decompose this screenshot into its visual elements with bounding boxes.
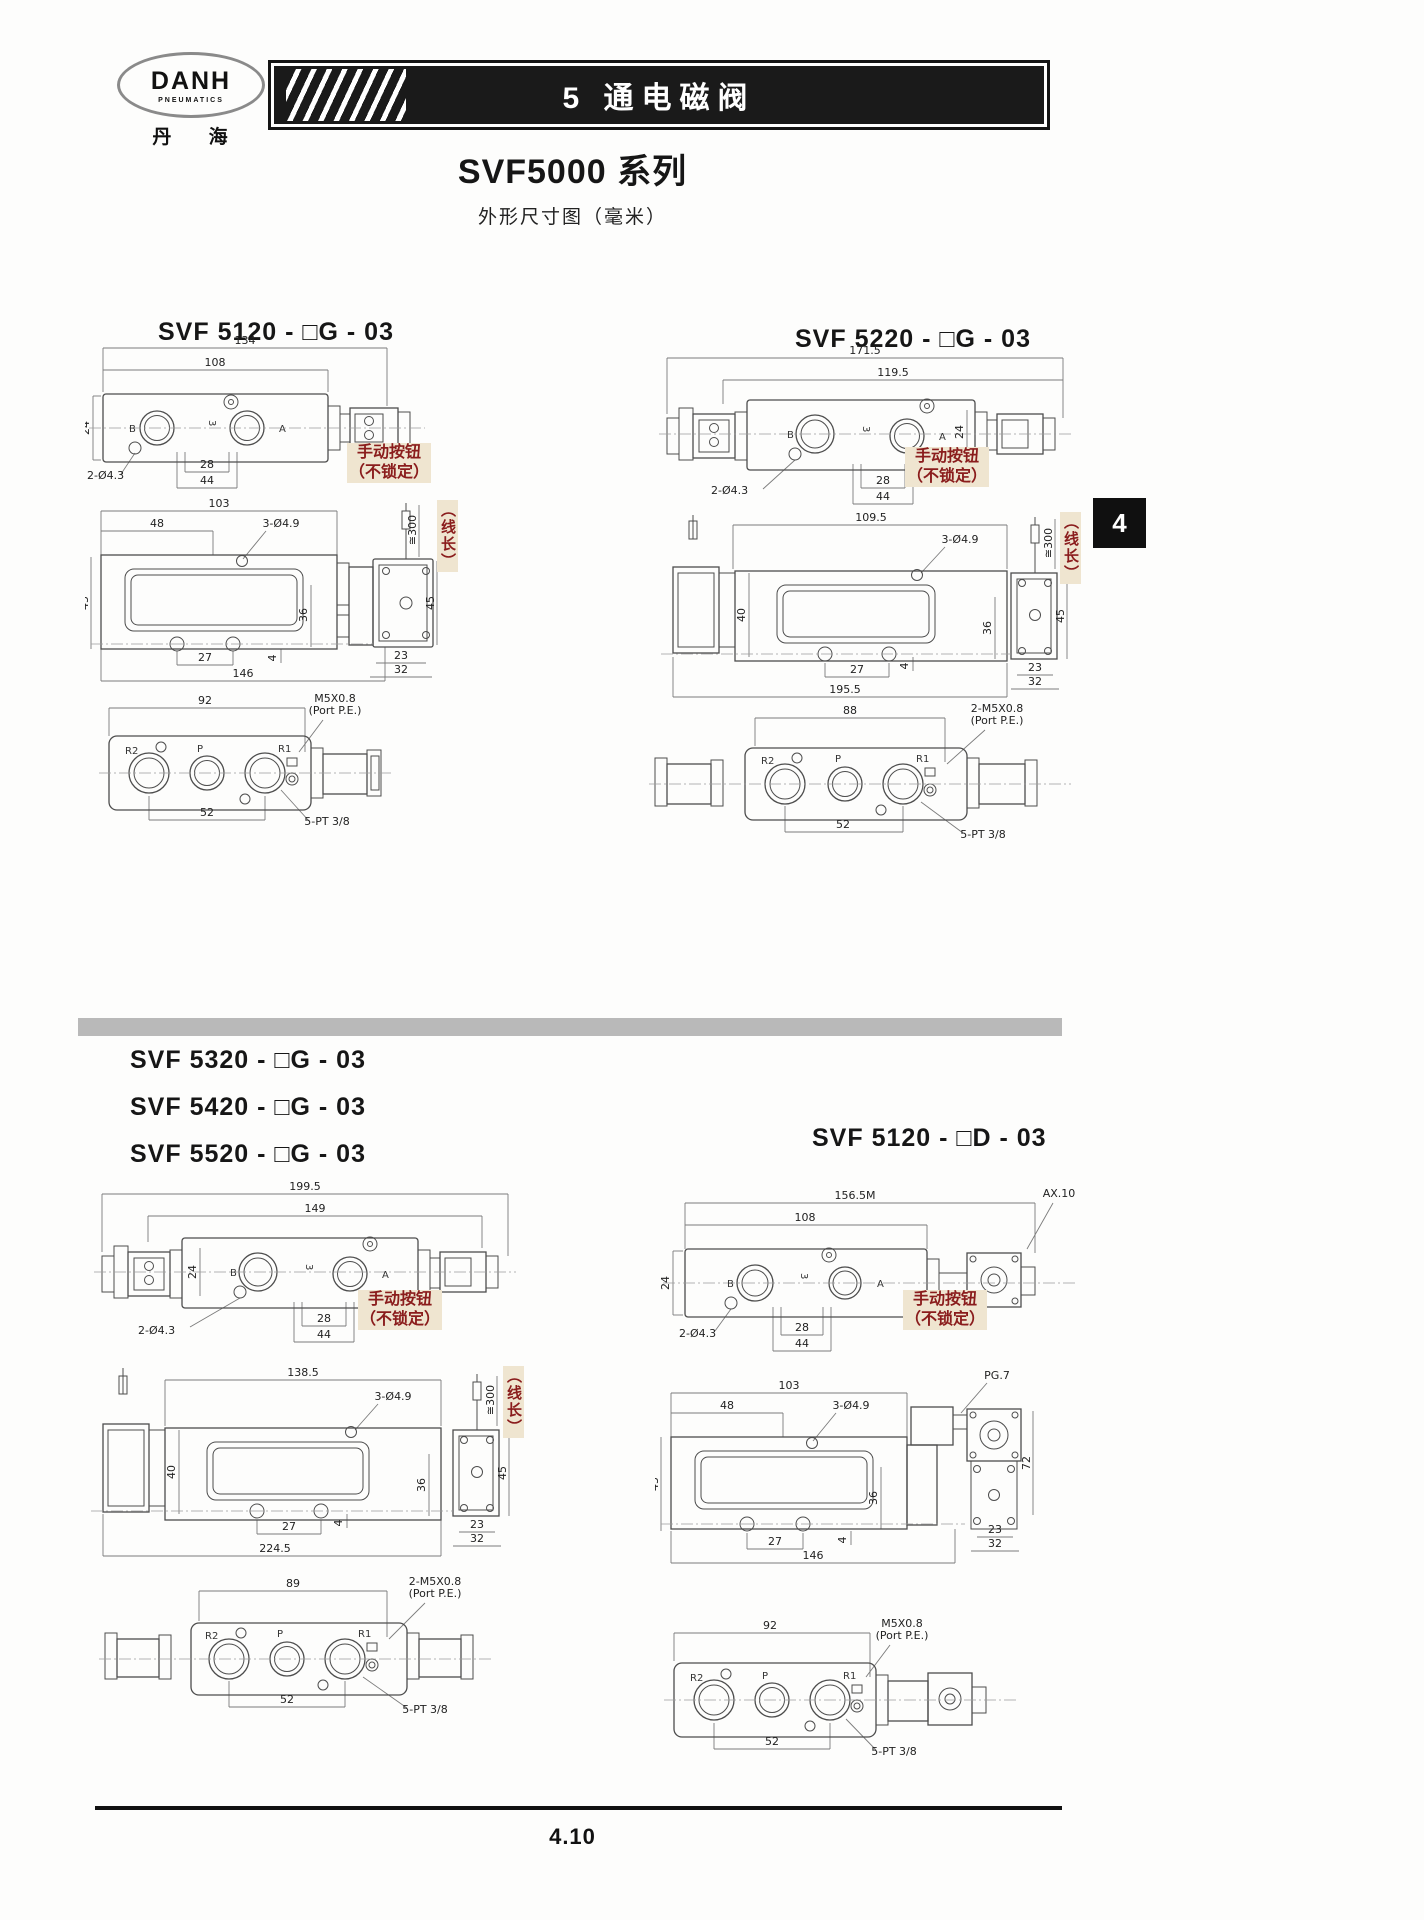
page-number: 4.10 xyxy=(80,1824,1065,1850)
dim-label: 45 xyxy=(85,596,91,610)
section-banner: 5 通电磁阀 xyxy=(268,60,1050,130)
port-label: R1 xyxy=(916,754,929,765)
dim-label: 36 xyxy=(415,1478,428,1492)
port-label: R2 xyxy=(761,756,774,767)
svf5120d-top-view-drawing: 156.5M AX.10 108 24 28 44 2-Ø4.3 B A 3 xyxy=(655,1185,1080,1357)
thread-callout: (Port P.E.) xyxy=(409,1587,462,1600)
valve-outline xyxy=(103,1368,499,1520)
dim-label: 134 xyxy=(235,334,256,347)
dim-label: 138.5 xyxy=(287,1366,319,1379)
port-label: B xyxy=(727,1279,734,1290)
port-label: 3 xyxy=(303,1264,314,1270)
dim-label: 45 xyxy=(1054,609,1067,623)
wire-length-dim: ≅300 xyxy=(1042,528,1055,558)
port-label: P xyxy=(197,744,203,755)
dimension-lines xyxy=(91,505,437,681)
thread-callout: (Port P.E.) xyxy=(876,1629,929,1642)
dim-label: 44 xyxy=(876,490,890,503)
dim-label: 32 xyxy=(988,1537,1002,1550)
callout-label: PG.7 xyxy=(984,1369,1010,1382)
figure-title-svf5420g: SVF 5420 - □G - 03 xyxy=(130,1093,366,1122)
manual-button-note: 手动按钮 （不锁定） xyxy=(903,1290,987,1330)
svf5120g-bottom-view-drawing: 92 M5X0.8 (Port P.E.) R2 P R1 52 5-PT 3/… xyxy=(95,692,395,830)
port-label: R1 xyxy=(358,1629,371,1640)
port-label: P xyxy=(835,754,841,765)
dim-label: 195.5 xyxy=(829,683,861,696)
dim-label: 32 xyxy=(394,663,408,676)
dim-label: 72 xyxy=(1020,1456,1033,1470)
svf5120g-front-view-drawing: 103 48 3-Ø4.9 45 36 4 27 146 23 32 45 ≅3… xyxy=(85,497,445,687)
dim-label: 52 xyxy=(836,818,850,831)
dim-label: 4 xyxy=(332,1520,345,1527)
port-label: R2 xyxy=(125,746,138,757)
svf5220g-top-view-drawing: 171.5 119.5 24 28 44 2-Ø4.3 B A 3 xyxy=(655,342,1075,508)
manual-button-note-line2: （不锁定） xyxy=(907,467,987,487)
brand-logo: DANH PNEUMATICS 丹 海 xyxy=(115,52,267,149)
port-label: P xyxy=(277,1629,283,1640)
thread-callout: 5-PT 3/8 xyxy=(960,828,1006,841)
dim-label: 36 xyxy=(297,608,310,622)
port-label: A xyxy=(382,1270,389,1281)
dimension-lines xyxy=(199,1591,425,1708)
dimension-lines xyxy=(673,519,1067,697)
logo-subtitle: PNEUMATICS xyxy=(158,97,224,104)
dim-label: 44 xyxy=(795,1337,809,1350)
banner-stripes-decoration xyxy=(286,69,406,121)
manual-button-note: 手动按钮 （不锁定） xyxy=(905,447,989,487)
hole-callout: 3-Ø4.9 xyxy=(262,517,299,530)
port-label: A xyxy=(877,1279,884,1290)
dim-label: 27 xyxy=(768,1535,782,1548)
dim-label: 4 xyxy=(836,1537,849,1544)
manual-button-note-line1: 手动按钮 xyxy=(360,1290,440,1310)
page-subtitle: 外形尺寸图（毫米） xyxy=(80,202,1065,229)
svf5320g-front-view-drawing: 138.5 3-Ø4.9 40 36 4 27 224.5 23 32 45 ≅… xyxy=(85,1360,517,1564)
hole-callout: 2-Ø4.3 xyxy=(679,1327,716,1340)
dimension-lines xyxy=(103,1376,509,1556)
dim-label: 23 xyxy=(988,1523,1002,1536)
port-label: B xyxy=(129,424,136,435)
dim-label: 27 xyxy=(198,651,212,664)
manual-button-note-line2: （不锁定） xyxy=(905,1310,985,1330)
dim-label: 119.5 xyxy=(877,366,909,379)
manual-button-note: 手动按钮 （不锁定） xyxy=(358,1290,442,1330)
hole-callout: 2-Ø4.3 xyxy=(711,484,748,497)
valve-outline xyxy=(667,399,1055,470)
dim-label: 45 xyxy=(424,596,437,610)
dim-label: 92 xyxy=(198,694,212,707)
port-label: R2 xyxy=(205,1631,218,1642)
wire-length-dim: ≅300 xyxy=(484,1385,497,1415)
dim-label: 52 xyxy=(765,1735,779,1748)
dim-label: 92 xyxy=(763,1619,777,1632)
wire-length-note: （线长） xyxy=(437,500,458,572)
catalog-page: DANH PNEUMATICS 丹 海 5 通电磁阀 SVF5000 系列 外形… xyxy=(0,0,1424,1920)
dim-label: 28 xyxy=(795,1321,809,1334)
chapter-tab: 4 xyxy=(1093,498,1146,548)
dim-label: 24 xyxy=(85,421,92,435)
dim-label: 108 xyxy=(795,1211,816,1224)
dim-label: 146 xyxy=(803,1549,824,1562)
dim-label: 48 xyxy=(720,1399,734,1412)
thread-callout: (Port P.E.) xyxy=(309,704,362,717)
port-label: 3 xyxy=(206,420,217,426)
callout-label: AX.10 xyxy=(1043,1187,1076,1200)
dim-label: 149 xyxy=(305,1202,326,1215)
dim-label: 32 xyxy=(470,1532,484,1545)
manual-button-note-line1: 手动按钮 xyxy=(349,443,429,463)
port-label: A xyxy=(939,432,946,443)
dim-label: 4 xyxy=(898,663,911,670)
dim-label: 4 xyxy=(266,655,279,662)
dimension-lines xyxy=(673,1203,1053,1351)
dim-label: 40 xyxy=(165,1465,178,1479)
port-label: 3 xyxy=(860,426,871,432)
manual-button-note-line1: 手动按钮 xyxy=(907,447,987,467)
svf5320g-bottom-view-drawing: 89 2-M5X0.8 (Port P.E.) R2 P R1 52 5-PT … xyxy=(95,1575,495,1717)
dim-label: 52 xyxy=(200,806,214,819)
wire-length-dim: ≅300 xyxy=(406,515,419,545)
dim-label: 199.5 xyxy=(289,1180,321,1193)
wire-length-note: （线长） xyxy=(1060,512,1081,584)
svf5220g-front-view-drawing: 109.5 3-Ø4.9 40 36 4 27 195.5 23 32 45 ≅… xyxy=(655,507,1085,703)
dim-label: 171.5 xyxy=(849,344,881,357)
figure-title-svf5320g: SVF 5320 - □G - 03 xyxy=(130,1046,366,1075)
dim-label: 44 xyxy=(317,1328,331,1341)
dim-label: 24 xyxy=(186,1265,199,1279)
dim-label: 156.5M xyxy=(835,1189,876,1202)
dim-label: 36 xyxy=(867,1491,880,1505)
port-label: 3 xyxy=(798,1273,809,1279)
port-label: A xyxy=(279,424,286,435)
figure-title-svf5520g: SVF 5520 - □G - 03 xyxy=(130,1140,366,1169)
dim-label: 40 xyxy=(735,608,748,622)
manual-button-note: 手动按钮 （不锁定） xyxy=(347,443,431,483)
svf5320g-top-view-drawing: 199.5 149 24 28 44 2-Ø4.3 B A 3 xyxy=(90,1178,520,1348)
logo-name: DANH xyxy=(151,67,231,96)
section-divider xyxy=(78,1018,1062,1036)
footer-rule xyxy=(95,1806,1062,1810)
thread-callout: 5-PT 3/8 xyxy=(304,815,350,828)
thread-callout: 5-PT 3/8 xyxy=(402,1703,448,1716)
dim-label: 32 xyxy=(1028,675,1042,688)
dim-label: 27 xyxy=(282,1520,296,1533)
dim-label: 89 xyxy=(286,1577,300,1590)
thread-callout: 5-PT 3/8 xyxy=(871,1745,917,1758)
dim-label: 45 xyxy=(496,1466,509,1480)
svf5120d-bottom-view-drawing: 92 M5X0.8 (Port P.E.) R2 P R1 52 5-PT 3/… xyxy=(660,1615,1020,1761)
port-label: R1 xyxy=(278,744,291,755)
dim-label: 28 xyxy=(317,1312,331,1325)
dim-label: 103 xyxy=(209,497,230,510)
hole-callout: 3-Ø4.9 xyxy=(832,1399,869,1412)
hole-callout: 2-Ø4.3 xyxy=(138,1324,175,1337)
dim-label: 48 xyxy=(150,517,164,530)
dimension-lines xyxy=(674,1633,890,1750)
hole-callout: 3-Ø4.9 xyxy=(941,533,978,546)
dim-label: 109.5 xyxy=(855,511,887,524)
dim-label: 45 xyxy=(655,1477,661,1491)
dim-label: 88 xyxy=(843,704,857,717)
port-label: B xyxy=(230,1268,237,1279)
dim-label: 23 xyxy=(1028,661,1042,674)
page-title: SVF5000 系列 xyxy=(80,144,1065,193)
banner-title: 5 通电磁阀 xyxy=(562,73,755,117)
figure-title-svf5120d: SVF 5120 - □D - 03 xyxy=(812,1124,1047,1153)
dim-label: 52 xyxy=(280,1693,294,1706)
hole-callout: 3-Ø4.9 xyxy=(374,1390,411,1403)
logo-ellipse: DANH PNEUMATICS xyxy=(117,52,265,118)
port-label: R1 xyxy=(843,1671,856,1682)
dim-label: 23 xyxy=(470,1518,484,1531)
valve-outline xyxy=(671,1407,1021,1531)
hole-callout: 2-Ø4.3 xyxy=(87,469,124,482)
dim-label: 44 xyxy=(200,474,214,487)
dim-label: 224.5 xyxy=(259,1542,291,1555)
dim-label: 103 xyxy=(779,1379,800,1392)
dim-label: 36 xyxy=(981,621,994,635)
port-label: P xyxy=(762,1671,768,1682)
valve-outline xyxy=(673,515,1057,661)
dim-label: 28 xyxy=(876,474,890,487)
manual-button-note-line2: （不锁定） xyxy=(349,463,429,483)
dim-label: 28 xyxy=(200,458,214,471)
manual-button-note-line1: 手动按钮 xyxy=(905,1290,985,1310)
dim-label: 23 xyxy=(394,649,408,662)
dim-label: 24 xyxy=(953,425,966,439)
thread-callout: (Port P.E.) xyxy=(971,714,1024,727)
svf5120d-front-view-drawing: PG.7 103 48 3-Ø4.9 45 36 4 27 146 72 23 … xyxy=(655,1367,1045,1573)
port-label: R2 xyxy=(690,1673,703,1684)
dim-label: 27 xyxy=(850,663,864,676)
dim-label: 146 xyxy=(233,667,254,680)
manual-button-note-line2: （不锁定） xyxy=(360,1310,440,1330)
dim-label: 108 xyxy=(205,356,226,369)
dim-label: 24 xyxy=(659,1276,672,1290)
port-label: B xyxy=(787,430,794,441)
wire-length-note: （线长） xyxy=(503,1366,524,1438)
svf5220g-bottom-view-drawing: 88 2-M5X0.8 (Port P.E.) R2 P R1 52 5-PT … xyxy=(645,702,1075,842)
dimension-lines xyxy=(755,718,985,833)
